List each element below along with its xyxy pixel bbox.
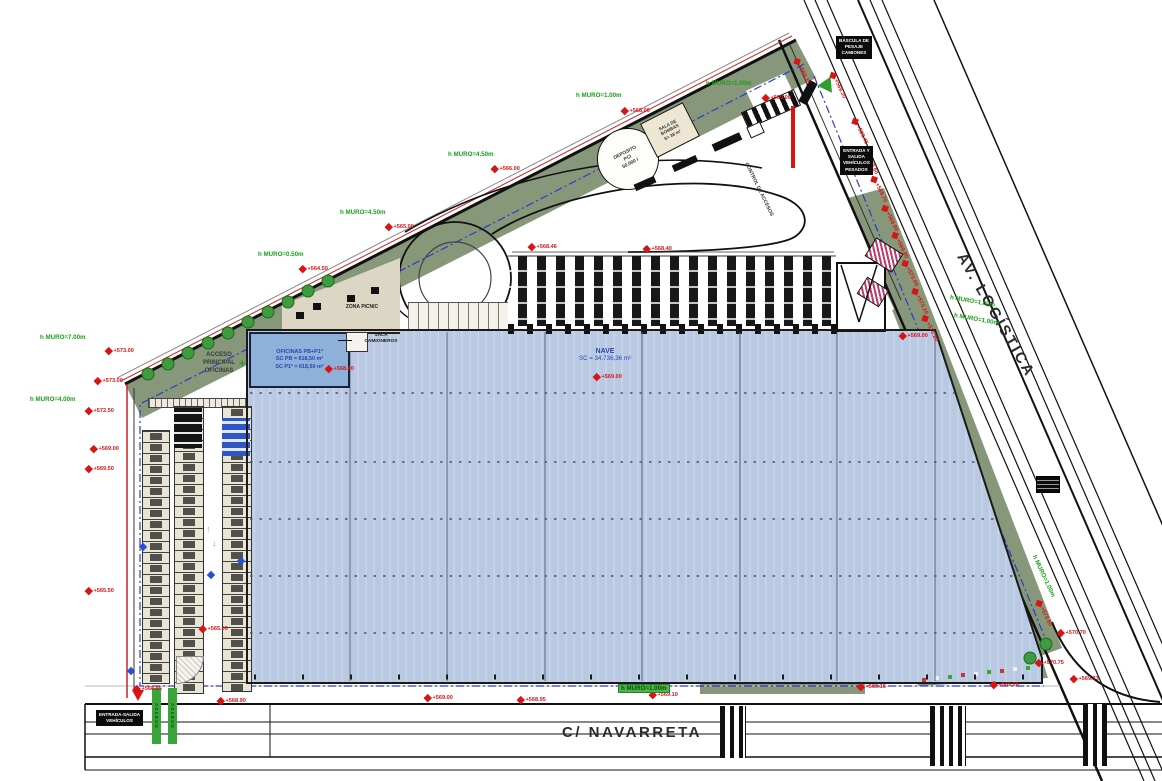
elevation-diamond-icon <box>882 205 889 212</box>
elevation-marker: +573.00 <box>95 378 123 384</box>
building-linework <box>0 0 1162 781</box>
wall-height-label: h MURO=7.00m <box>40 334 86 341</box>
elevation-marker: +569.16 <box>858 684 886 690</box>
elevation-marker: +569.00 <box>900 333 928 339</box>
elevation-marker: +570.75 <box>1036 660 1064 666</box>
elevation-marker: +568.85 <box>134 686 162 692</box>
elevation-diamond-icon <box>643 245 651 253</box>
elevation-marker: +568.95 <box>518 697 546 703</box>
wall-height-label: h MURO=1.00m <box>618 684 670 693</box>
building-outline <box>247 330 1042 683</box>
elevation-diamond-icon <box>593 373 601 381</box>
nave-label: NAVE SC = 34.736,36 m² <box>530 348 680 362</box>
elevation-diamond-icon <box>217 697 225 705</box>
elevation-marker: +569.00 <box>425 695 453 701</box>
elevation-marker: +568.46 <box>529 244 557 250</box>
annotation-chip: BÁSCULA DEPESAJECAMIONES <box>836 36 872 59</box>
elevation-diamond-icon <box>1070 675 1078 683</box>
elevation-marker: +568.00 <box>326 366 354 372</box>
elevation-diamond-icon <box>892 232 899 239</box>
elevation-marker: +565.00 <box>386 224 414 230</box>
elevation-diamond-icon <box>852 118 859 125</box>
elevation-diamond-icon <box>517 696 525 704</box>
elevation-marker: +568.40 <box>644 246 672 252</box>
elevation-diamond-icon <box>794 58 801 65</box>
elevation-marker: +570.70 <box>1058 630 1086 636</box>
elevation-diamond-icon <box>857 683 865 691</box>
elevation-diamond-icon <box>85 587 93 595</box>
elevation-diamond-icon <box>621 107 629 115</box>
elevation-marker: +564.50 <box>300 266 328 272</box>
elevation-marker: +565.50 <box>86 588 114 594</box>
elevation-diamond-icon <box>762 94 770 102</box>
office-area-p1: SC P1ª = 618,50 m² <box>275 364 323 371</box>
wall-height-label: h MURO=4.00m <box>30 396 76 403</box>
wall-height-label: h MURO=4.50m <box>448 151 494 158</box>
annotation-chip: ENTRADA YSALIDAVEHÍCULOSPESADOS <box>840 146 873 175</box>
elevation-diamond-icon <box>1036 600 1043 607</box>
building-grid-lines <box>350 332 935 681</box>
wall-height-label: h MURO=0.50m <box>258 251 304 258</box>
elevation-diamond-icon <box>105 347 113 355</box>
elevation-diamond-icon <box>491 165 499 173</box>
elevation-diamond-icon <box>94 377 102 385</box>
elevation-diamond-icon <box>912 288 919 295</box>
elevation-marker: +573.00 <box>106 348 134 354</box>
wall-height-label: h MURO=1.00m <box>706 80 752 87</box>
elevation-marker: +572.50 <box>86 408 114 414</box>
elevation-marker: +565.00 <box>200 626 228 632</box>
elevation-diamond-icon <box>922 315 929 322</box>
wall-height-label: h MURO=1.00m <box>576 92 622 99</box>
elevation-marker: +568.90 <box>218 698 246 704</box>
main-access-label: ACCESO PRINCIPAL OFICINAS <box>184 352 254 375</box>
elevation-diamond-icon <box>85 407 93 415</box>
elevation-diamond-icon <box>899 332 907 340</box>
elevation-diamond-icon <box>871 176 878 183</box>
office-label: OFICINAS PB+P1ª <box>276 349 322 356</box>
elevation-diamond-icon <box>1035 659 1043 667</box>
elevation-diamond-icon <box>528 243 536 251</box>
elevation-marker: +569.00 <box>91 446 119 452</box>
elevation-diamond-icon <box>199 625 207 633</box>
ramp-v-line <box>859 265 877 322</box>
truckers-room-label: SALA CAMIONEROS <box>350 333 412 345</box>
elevation-marker: +569.50 <box>86 466 114 472</box>
site-plan: OFICINAS PB+P1ª SC PB = 618,50 m² SC P1ª… <box>0 0 1162 781</box>
elevation-diamond-icon <box>385 223 393 231</box>
elevation-marker: +569.00 <box>763 95 791 101</box>
annotation-chip: ENTRADA-SALIDAVEHÍCULOS <box>96 710 143 726</box>
office-area-pb: SC PB = 618,50 m² <box>276 356 323 363</box>
wall-height-label: h MURO=4.50m <box>340 209 386 216</box>
elevation-marker: +569.26 <box>991 682 1019 688</box>
elevation-diamond-icon <box>1057 629 1065 637</box>
elevation-diamond-icon <box>85 465 93 473</box>
ramp-v-line <box>841 265 859 322</box>
elevation-diamond-icon <box>902 260 909 267</box>
elevation-marker: +568.00 <box>622 108 650 114</box>
elevation-diamond-icon <box>830 72 837 79</box>
elevation-marker: +569.00 <box>594 374 622 380</box>
elevation-diamond-icon <box>90 445 98 453</box>
elevation-diamond-icon <box>299 265 307 273</box>
elevation-diamond-icon <box>424 694 432 702</box>
elevation-diamond-icon <box>325 365 333 373</box>
elevation-diamond-icon <box>133 685 141 693</box>
elevation-marker: +566.00 <box>492 166 520 172</box>
office-block: OFICINAS PB+P1ª SC PB = 618,50 m² SC P1ª… <box>249 332 350 388</box>
elevation-marker: +569.73 <box>1071 676 1099 682</box>
elevation-diamond-icon <box>990 681 998 689</box>
